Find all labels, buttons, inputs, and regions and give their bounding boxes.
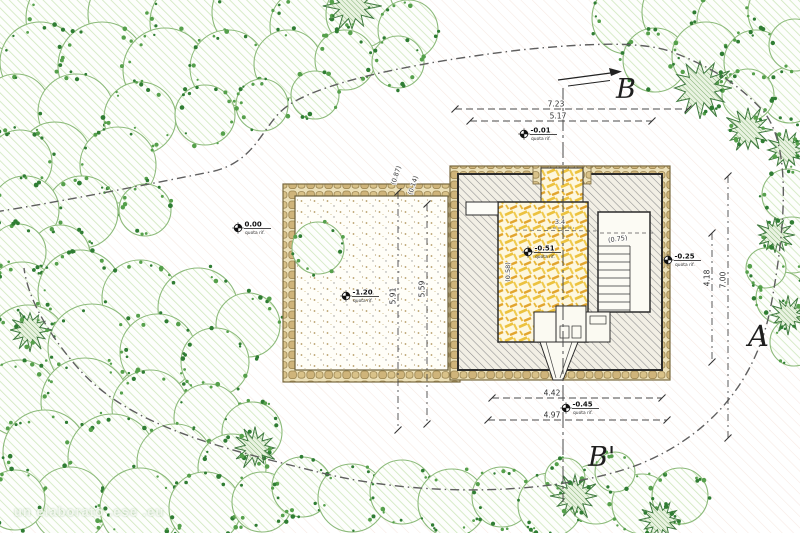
- foliage-dot: [648, 486, 653, 491]
- foliage-dot: [67, 250, 71, 254]
- foliage-dot: [408, 4, 413, 9]
- foliage-dot: [580, 511, 584, 515]
- foliage-dot: [80, 231, 84, 235]
- foliage-dot: [43, 394, 47, 398]
- foliage-dot: [274, 423, 278, 427]
- foliage-dot: [186, 329, 189, 332]
- foliage-dot: [360, 40, 363, 43]
- foliage-dot: [472, 491, 476, 495]
- foliage-dot: [695, 477, 698, 480]
- tree-canopy: [291, 71, 339, 119]
- foliage-dot: [416, 49, 418, 51]
- foliage-dot: [265, 464, 270, 469]
- dimension-label: 5.17: [550, 112, 567, 121]
- foliage-dot: [768, 33, 770, 35]
- foliage-dot: [50, 356, 53, 359]
- foliage-dot: [52, 153, 55, 156]
- foliage-dot: [733, 74, 737, 78]
- foliage-dot: [11, 222, 15, 226]
- foliage-dot: [664, 505, 668, 509]
- foliage-dot: [141, 323, 145, 327]
- foliage-dot: [45, 328, 49, 332]
- foliage-dot: [291, 252, 294, 255]
- foliage-dot: [424, 476, 427, 479]
- foliage-dot: [562, 509, 567, 514]
- foliage-dot: [103, 128, 106, 131]
- foliage-dot: [15, 77, 17, 79]
- foliage-dot: [23, 358, 27, 362]
- foliage-dot: [3, 128, 7, 132]
- foliage-dot: [89, 428, 94, 433]
- foliage-dot: [759, 296, 763, 300]
- foliage-dot: [240, 477, 243, 480]
- foliage-dot: [755, 304, 758, 307]
- foliage-dot: [101, 187, 103, 189]
- foliage-dot: [84, 73, 87, 76]
- foliage-dot: [329, 477, 332, 480]
- foliage-dot: [9, 467, 14, 472]
- foliage-dot: [369, 499, 371, 501]
- foliage-dot: [37, 372, 42, 377]
- foliage-dot: [787, 170, 790, 173]
- foliage-dot: [27, 229, 30, 232]
- foliage-dot: [300, 455, 304, 459]
- foliage-dot: [674, 41, 679, 46]
- foliage-dot: [26, 31, 29, 34]
- foliage-dot: [62, 319, 65, 322]
- foliage-dot: [789, 117, 792, 120]
- foliage-dot: [247, 289, 251, 293]
- foliage-dot: [198, 39, 201, 42]
- foliage-dot: [14, 366, 16, 368]
- foliage-dot: [736, 69, 740, 73]
- foliage-dot: [230, 121, 233, 124]
- foliage-dot: [97, 526, 101, 530]
- foliage-dot: [50, 380, 53, 383]
- foliage-dot: [533, 527, 535, 529]
- foliage-dot: [658, 478, 662, 482]
- foliage-dot: [241, 516, 245, 520]
- foliage-dot: [759, 195, 761, 197]
- foliage-dot: [607, 502, 611, 506]
- foliage-dot: [65, 440, 69, 444]
- foliage-dot: [239, 87, 243, 91]
- foliage-dot: [108, 359, 111, 362]
- elevation-note: quota rif.: [573, 410, 593, 416]
- foliage-dot: [120, 64, 124, 68]
- foliage-dot: [158, 186, 161, 189]
- entrance-jamb: [583, 166, 591, 184]
- foliage-dot: [120, 351, 123, 354]
- foliage-dot: [150, 17, 154, 21]
- foliage-dot: [291, 514, 296, 519]
- foliage-dot: [130, 39, 133, 42]
- foliage-dot: [693, 20, 696, 23]
- foliage-dot: [623, 528, 626, 531]
- foliage-dot: [237, 388, 240, 391]
- foliage-dot: [24, 345, 29, 350]
- foliage-dot: [77, 228, 81, 232]
- foliage-dot: [239, 526, 242, 529]
- foliage-dot: [91, 242, 93, 244]
- foliage-dot: [621, 51, 625, 55]
- foliage-dot: [1, 364, 3, 366]
- foliage-dot: [209, 265, 212, 268]
- foliage-dot: [762, 75, 766, 79]
- foliage-dot: [674, 515, 677, 518]
- dimension-label: 5.59: [418, 280, 427, 297]
- foliage-dot: [226, 330, 229, 333]
- foliage-dot: [46, 266, 49, 269]
- foliage-dot: [672, 63, 675, 66]
- foliage-dot: [386, 8, 389, 11]
- foliage-dot: [747, 15, 750, 18]
- foliage-dot: [162, 378, 165, 381]
- foliage-dot: [110, 371, 112, 373]
- foliage-dot: [128, 372, 130, 374]
- wall-niche: [466, 202, 498, 215]
- foliage-dot: [268, 403, 270, 405]
- foliage-dot: [242, 86, 244, 88]
- foliage-dot: [258, 295, 263, 300]
- foliage-dot: [182, 93, 185, 96]
- foliage-dot: [402, 84, 406, 88]
- foliage-dot: [368, 518, 372, 522]
- dimension-label: 7.00: [719, 271, 728, 288]
- foliage-dot: [352, 530, 354, 532]
- foliage-dot: [772, 154, 777, 159]
- foliage-dot: [761, 126, 764, 129]
- foliage-dot: [34, 183, 39, 188]
- foliage-dot: [559, 492, 562, 495]
- foliage-dot: [36, 129, 38, 131]
- foliage-dot: [314, 502, 317, 505]
- foliage-dot: [792, 325, 795, 328]
- foliage-dot: [65, 367, 68, 370]
- foliage-dot: [64, 76, 68, 80]
- foliage-dot: [19, 422, 22, 425]
- foliage-dot: [301, 115, 305, 119]
- foliage-dot: [117, 95, 119, 97]
- foliage-dot: [594, 1, 597, 4]
- foliage-dot: [529, 528, 533, 532]
- foliage-dot: [710, 106, 715, 111]
- foliage-dot: [254, 44, 257, 47]
- foliage-dot: [61, 255, 64, 258]
- foliage-dot: [28, 17, 32, 21]
- foliage-dot: [240, 484, 243, 487]
- foliage-dot: [796, 123, 799, 126]
- foliage-dot: [298, 234, 302, 238]
- section-label-a: A: [745, 319, 769, 353]
- foliage-dot: [366, 68, 370, 72]
- foliage-dot: [606, 485, 609, 488]
- foliage-dot: [144, 35, 147, 38]
- foliage-dot: [185, 132, 187, 134]
- foliage-dot: [104, 121, 107, 124]
- foliage-dot: [311, 458, 315, 462]
- foliage-dot: [791, 171, 794, 174]
- foliage-dot: [277, 12, 280, 15]
- foliage-dot: [668, 64, 673, 69]
- foliage-dot: [322, 34, 326, 38]
- foliage-dot: [194, 45, 198, 49]
- foliage-dot: [135, 229, 139, 233]
- foliage-dot: [15, 423, 18, 426]
- foliage-dot: [331, 229, 334, 232]
- foliage-dot: [48, 379, 50, 381]
- foliage-dot: [752, 281, 755, 284]
- foliage-dot: [285, 510, 289, 514]
- foliage-dot: [141, 80, 144, 83]
- foliage-dot: [142, 426, 147, 431]
- foliage-dot: [636, 475, 638, 477]
- foliage-dot: [168, 203, 173, 208]
- foliage-dot: [372, 483, 374, 485]
- foliage-dot: [211, 276, 213, 278]
- foliage-dot: [193, 426, 196, 429]
- elevation-note: quota rif.: [675, 262, 695, 268]
- foliage-dot: [277, 520, 280, 523]
- foliage-dot: [57, 362, 61, 366]
- foliage-dot: [103, 506, 107, 510]
- foliage-dot: [595, 15, 597, 17]
- foliage-dot: [647, 27, 651, 31]
- foliage-dot: [609, 491, 612, 494]
- foliage-dot: [182, 382, 186, 386]
- foliage-dot: [55, 70, 59, 74]
- foliage-dot: [651, 497, 654, 500]
- foliage-dot: [188, 343, 192, 347]
- foliage-dot: [58, 63, 62, 67]
- foliage-dot: [169, 199, 173, 203]
- entrance-corridor: [541, 168, 583, 204]
- foliage-dot: [383, 511, 385, 513]
- foliage-dot: [382, 509, 385, 512]
- foliage-dot: [36, 265, 40, 269]
- foliage-dot: [44, 486, 48, 490]
- foliage-dot: [134, 127, 136, 129]
- foliage-dot: [257, 462, 261, 466]
- foliage-dot: [141, 233, 144, 236]
- foliage-dot: [5, 133, 9, 137]
- foliage-dot: [227, 100, 231, 104]
- foliage-dot: [126, 316, 130, 320]
- foliage-dot: [123, 202, 127, 206]
- foliage-dot: [107, 121, 111, 125]
- foliage-dot: [152, 145, 155, 148]
- foliage-dot: [368, 6, 370, 8]
- foliage-dot: [345, 23, 348, 26]
- foliage-dot: [278, 320, 281, 323]
- foliage-dot: [159, 311, 162, 314]
- foliage-dot: [126, 356, 129, 359]
- foliage-dot: [146, 179, 150, 183]
- foliage-dot: [218, 0, 221, 3]
- foliage-dot: [434, 529, 437, 532]
- annotation-label: 3.4: [555, 218, 565, 226]
- foliage-dot: [373, 49, 377, 53]
- foliage-dot: [128, 61, 131, 64]
- foliage-dot: [46, 303, 50, 307]
- foliage-dot: [170, 515, 174, 519]
- foliage-dot: [784, 243, 787, 246]
- foliage-dot: [217, 142, 219, 144]
- foliage-dot: [695, 479, 699, 483]
- foliage-dot: [273, 483, 277, 487]
- foliage-dot: [180, 105, 185, 110]
- foliage-dot: [481, 472, 484, 475]
- foliage-dot: [145, 232, 148, 235]
- foliage-dot: [175, 481, 178, 484]
- foliage-dot: [334, 106, 337, 109]
- foliage-dot: [790, 166, 792, 168]
- foliage-dot: [478, 518, 482, 522]
- foliage-dot: [150, 264, 153, 267]
- foliage-dot: [381, 13, 384, 16]
- foliage-dot: [271, 487, 274, 490]
- foliage-dot: [796, 142, 800, 146]
- foliage-dot: [240, 101, 243, 104]
- foliage-dot: [372, 496, 375, 499]
- foliage-dot: [25, 177, 28, 180]
- foliage-dot: [223, 90, 227, 94]
- foliage-dot: [247, 399, 250, 402]
- foliage-dot: [107, 418, 111, 422]
- foliage-dot: [338, 250, 342, 254]
- foliage-dot: [260, 83, 263, 86]
- foliage-dot: [674, 49, 677, 52]
- foliage-dot: [286, 114, 291, 119]
- foliage-dot: [404, 1, 406, 3]
- foliage-dot: [737, 142, 741, 146]
- foliage-dot: [784, 65, 787, 68]
- foliage-dot: [352, 23, 354, 25]
- plan-svg: 7.235.174.424.974.187.005.915.59 -0.01qu…: [0, 0, 800, 533]
- foliage-dot: [44, 289, 46, 291]
- foliage-dot: [26, 469, 29, 472]
- foliage-dot: [150, 429, 153, 432]
- foliage-dot: [761, 27, 765, 31]
- foliage-dot: [300, 73, 303, 76]
- foliage-dot: [146, 88, 150, 92]
- foliage-dot: [255, 357, 258, 360]
- foliage-dot: [240, 454, 245, 459]
- foliage-dot: [210, 386, 213, 389]
- section-label-b: B: [615, 74, 636, 105]
- foliage-dot: [323, 220, 327, 224]
- foliage-dot: [783, 362, 785, 364]
- foliage-dot: [122, 35, 126, 39]
- foliage-dot: [306, 267, 309, 270]
- foliage-dot: [50, 227, 54, 231]
- foliage-dot: [400, 519, 403, 522]
- elevation-note: quota rif.: [535, 254, 555, 260]
- foliage-dot: [95, 506, 97, 508]
- foliage-dot: [285, 34, 287, 36]
- foliage-dot: [58, 45, 62, 49]
- foliage-dot: [702, 478, 707, 483]
- foliage-dot: [100, 259, 104, 263]
- foliage-dot: [185, 380, 188, 383]
- foliage-dot: [664, 472, 667, 475]
- foliage-dot: [38, 272, 41, 275]
- foliage-dot: [388, 84, 391, 87]
- foliage-dot: [323, 70, 327, 74]
- foliage-dot: [749, 30, 753, 34]
- foliage-dot: [139, 261, 142, 264]
- foliage-dot: [320, 47, 324, 51]
- foliage-dot: [233, 100, 236, 103]
- elevation-note: quota rif.: [245, 230, 265, 236]
- foliage-dot: [159, 266, 164, 271]
- foliage-dot: [85, 176, 89, 180]
- foliage-dot: [646, 31, 650, 35]
- foliage-dot: [182, 352, 185, 355]
- tree-canopy: [119, 184, 171, 236]
- foliage-dot: [493, 472, 495, 474]
- tree-canopy: [292, 222, 344, 274]
- foliage-dot: [784, 328, 787, 331]
- elevation-value: -0.01: [531, 127, 551, 135]
- foliage-dot: [39, 112, 43, 116]
- annotation-label: (0.58): [504, 262, 512, 282]
- foliage-dot: [790, 220, 795, 225]
- foliage-dot: [214, 88, 218, 92]
- foliage-dot: [381, 41, 383, 43]
- foliage-dot: [202, 381, 205, 384]
- foliage-dot: [681, 70, 685, 74]
- foliage-dot: [70, 70, 73, 73]
- foliage-dot: [501, 528, 504, 531]
- foliage-dot: [140, 43, 143, 46]
- foliage-dot: [264, 78, 267, 81]
- foliage-dot: [100, 412, 102, 414]
- foliage-dot: [752, 34, 754, 36]
- foliage-dot: [763, 193, 767, 197]
- foliage-dot: [243, 374, 247, 378]
- foliage-dot: [758, 285, 763, 290]
- elevation-value: -0.25: [675, 253, 695, 261]
- elevation-note: quota rif.: [353, 298, 373, 304]
- foliage-dot: [190, 384, 192, 386]
- foliage-dot: [421, 517, 423, 519]
- foliage-dot: [267, 297, 272, 302]
- foliage-dot: [785, 301, 788, 304]
- foliage-dot: [761, 139, 765, 143]
- foliage-dot: [156, 475, 158, 477]
- foliage-dot: [341, 242, 343, 244]
- foliage-dot: [323, 504, 326, 507]
- foliage-dot: [420, 57, 424, 61]
- foliage-dot: [729, 124, 733, 128]
- foliage-dot: [276, 28, 279, 31]
- foliage-dot: [752, 296, 756, 300]
- foliage-dot: [777, 132, 781, 136]
- foliage-dot: [335, 27, 339, 31]
- foliage-dot: [226, 435, 230, 439]
- foliage-dot: [166, 528, 169, 531]
- foliage-dot: [517, 499, 520, 502]
- foliage-dot: [692, 10, 696, 14]
- foliage-dot: [139, 82, 143, 86]
- foliage-dot: [157, 93, 161, 97]
- foliage-dot: [597, 19, 601, 23]
- foliage-dot: [97, 131, 101, 135]
- foliage-dot: [780, 325, 784, 329]
- foliage-dot: [213, 35, 216, 38]
- foliage-dot: [22, 315, 25, 318]
